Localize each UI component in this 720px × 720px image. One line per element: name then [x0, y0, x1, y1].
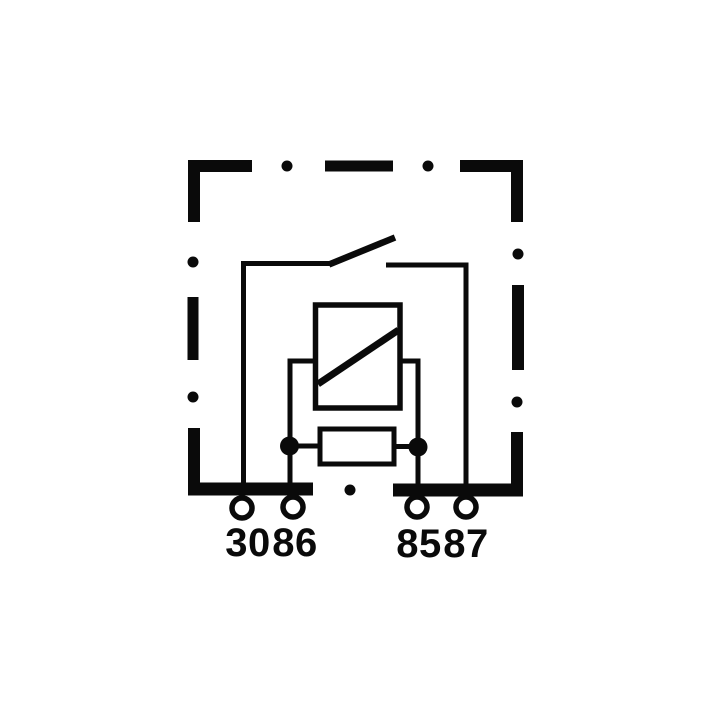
- terminal-pins: [232, 497, 476, 518]
- terminal-pin-87: [456, 497, 476, 517]
- junction-dot-right: [409, 438, 428, 457]
- terminal-label-85: 85: [396, 522, 442, 566]
- diagram-canvas: 30 86 85 87: [0, 0, 720, 720]
- relay-circuit-diagram: 30 86 85 87: [0, 0, 720, 720]
- resistor-symbol: [320, 429, 394, 464]
- switch-contact-blade: [329, 238, 395, 265]
- relay-internal-circuit: [241, 238, 466, 490]
- terminal-labels: 30 86 85 87: [225, 521, 489, 566]
- terminal-pin-85: [407, 497, 427, 517]
- terminal-label-86: 86: [272, 521, 318, 565]
- border-right-dot-2: [512, 397, 523, 408]
- border-left-dot-1: [188, 257, 199, 268]
- terminal-pin-30: [232, 498, 252, 518]
- junction-dot-left: [280, 437, 299, 456]
- terminal-label-30: 30: [225, 521, 271, 565]
- border-left-dot-2: [188, 392, 199, 403]
- border-right-dot-1: [513, 249, 524, 260]
- border-top-dot-1: [282, 161, 293, 172]
- terminal-pin-86: [283, 497, 303, 517]
- border-top-dot-2: [423, 161, 434, 172]
- terminal-label-87: 87: [443, 522, 489, 566]
- border-bottom-dot: [345, 485, 356, 496]
